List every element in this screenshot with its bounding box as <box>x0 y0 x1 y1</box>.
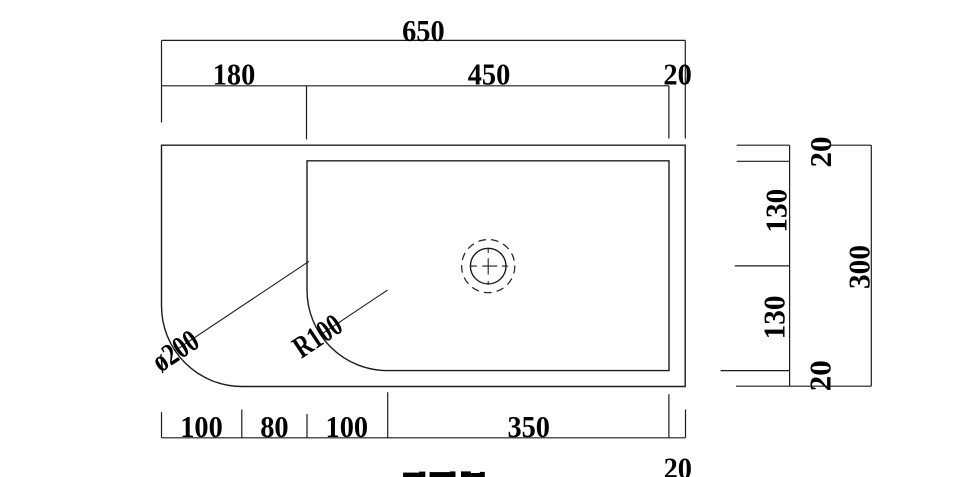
svg-text:100: 100 <box>180 409 223 444</box>
svg-text:100: 100 <box>326 409 369 444</box>
svg-text:130: 130 <box>758 189 793 233</box>
svg-text:20: 20 <box>663 56 691 91</box>
svg-text:650: 650 <box>402 13 445 48</box>
svg-text:300: 300 <box>841 245 876 289</box>
svg-text:20: 20 <box>664 451 692 477</box>
svg-text:180: 180 <box>213 56 256 91</box>
svg-text:80: 80 <box>260 409 288 444</box>
svg-text:350: 350 <box>507 409 550 444</box>
svg-text:450: 450 <box>468 56 511 91</box>
svg-text:20: 20 <box>803 137 838 168</box>
svg-text:130: 130 <box>756 295 791 339</box>
